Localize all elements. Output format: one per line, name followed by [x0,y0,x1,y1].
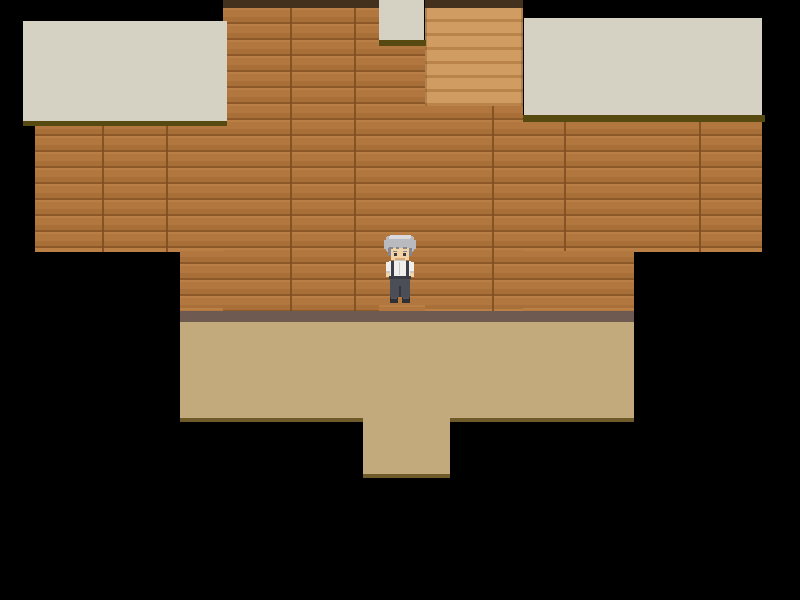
floor-doorway-edge [363,474,450,478]
hair-left-tuft [384,240,388,249]
cuff-left [386,271,390,273]
roof-right [524,18,762,115]
leg-gap [399,286,401,297]
roof-left-shadow [23,121,227,126]
arm-right [410,262,414,272]
belt [389,276,411,279]
wall-center-column [223,8,379,311]
bang-spike-2 [396,247,399,249]
shirt-placket [399,262,400,275]
floor-edge-right [450,418,634,422]
roof-small-center-shadow [379,40,426,46]
shoe-right-highlight [403,297,409,299]
floor-doorway[interactable] [363,418,450,474]
shoe-left-highlight [391,297,397,299]
roof-small-center [379,0,424,40]
bang-spike-3 [403,247,407,249]
eyebrow-left [393,251,397,252]
arm-left [386,262,390,272]
suspender-right [406,261,409,276]
wall-below-stairs [425,106,523,311]
sideburn-right [409,248,412,256]
floor-edge-left [180,418,363,422]
floor-main[interactable] [180,322,634,418]
hair-bangs [388,241,412,248]
wall-top-edge-left [223,0,379,8]
suspender-left [391,261,394,276]
eye-left [394,253,397,256]
cuff-right [410,271,414,273]
player-sprite-svg [381,234,419,306]
wall-top-edge-right [425,0,523,8]
stairs-up[interactable] [425,8,523,106]
sideburn-left [388,248,391,256]
hair-top-highlight [389,235,411,239]
player-character[interactable] [381,234,419,306]
hair-right-tuft [412,240,416,249]
roof-right-shadow [523,115,765,122]
roof-left [23,21,227,121]
game-viewport[interactable] [0,0,800,600]
eye-right [403,253,406,256]
eyebrow-right [403,251,407,252]
baseboard-strip [180,311,634,322]
chin-shadow [395,258,405,260]
